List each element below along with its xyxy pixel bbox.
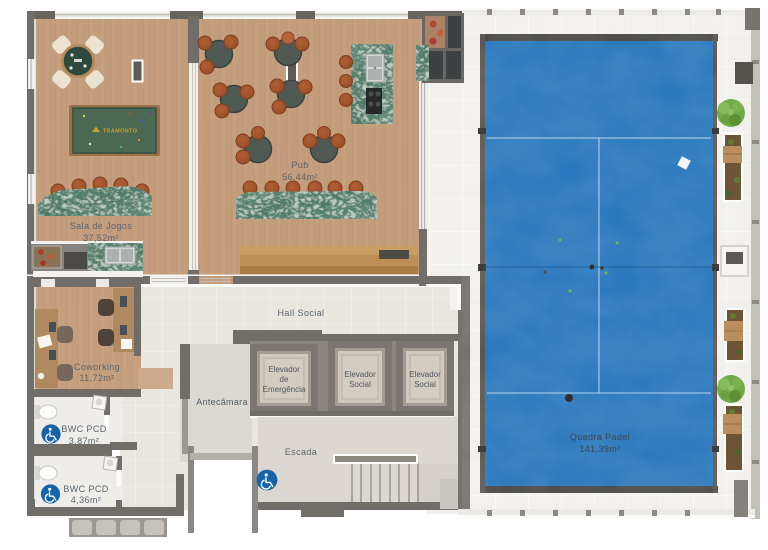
- svg-text:Escada: Escada: [285, 447, 317, 457]
- svg-text:Social: Social: [349, 380, 371, 389]
- svg-text:BWC PCD: BWC PCD: [61, 424, 106, 434]
- svg-text:Elevador: Elevador: [268, 365, 300, 374]
- svg-text:Elevador: Elevador: [344, 370, 376, 379]
- svg-text:Coworking: Coworking: [74, 362, 120, 372]
- svg-text:Emergência: Emergência: [263, 385, 306, 394]
- svg-text:de: de: [280, 375, 289, 384]
- svg-text:Antecâmara: Antecâmara: [196, 397, 248, 407]
- svg-text:Sala de Jogos: Sala de Jogos: [70, 221, 132, 231]
- svg-text:11,72m²: 11,72m²: [79, 373, 114, 383]
- svg-text:Social: Social: [414, 380, 436, 389]
- svg-text:TRAMONTO: TRAMONTO: [103, 129, 138, 135]
- svg-text:Pub: Pub: [291, 160, 308, 170]
- svg-text:56,44m²: 56,44m²: [282, 172, 318, 182]
- svg-text:Hall Social: Hall Social: [278, 308, 325, 318]
- svg-text:BWC PCD: BWC PCD: [63, 484, 108, 494]
- svg-text:Elevador: Elevador: [409, 370, 441, 379]
- svg-text:3,87m²: 3,87m²: [69, 436, 99, 446]
- svg-text:4,36m²: 4,36m²: [71, 495, 101, 505]
- svg-text:Quadra Padel: Quadra Padel: [570, 432, 630, 442]
- svg-text:37,52m²: 37,52m²: [83, 233, 119, 243]
- svg-text:141,39m²: 141,39m²: [579, 444, 620, 454]
